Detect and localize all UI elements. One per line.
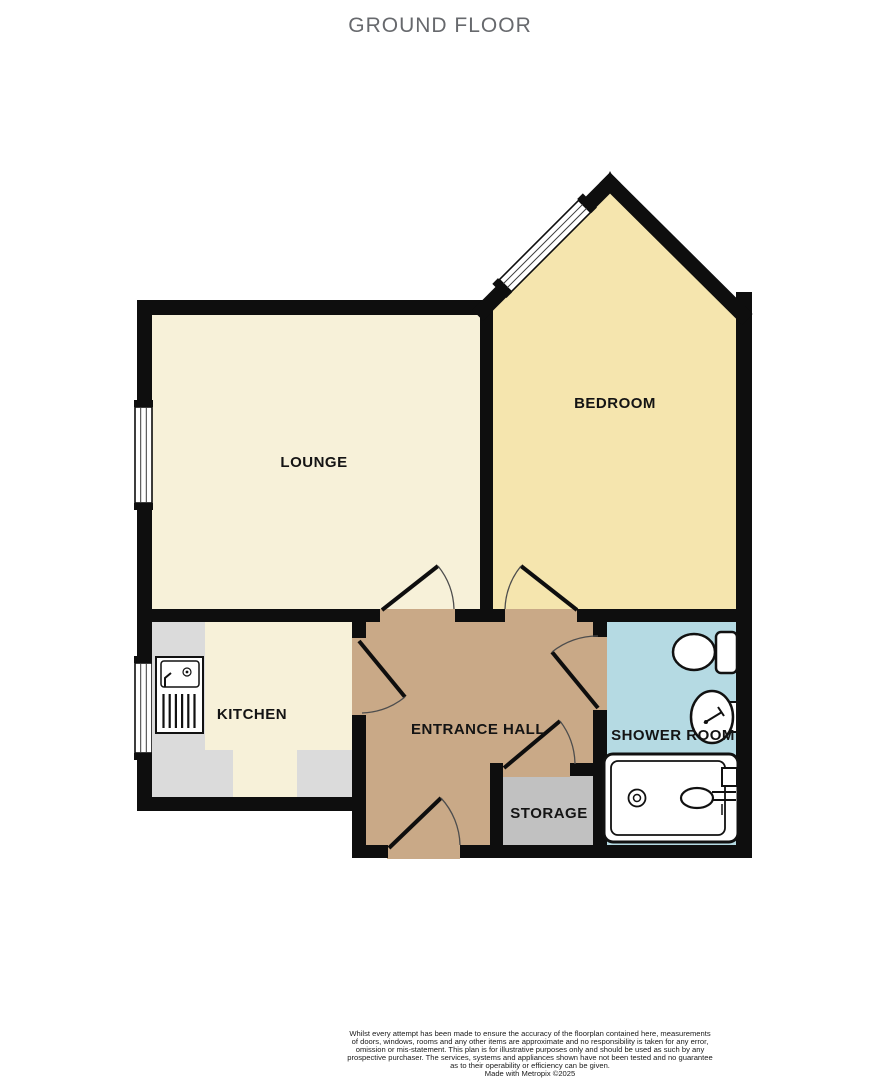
storage-doorway: [503, 763, 570, 777]
disclaimer: Whilst every attempt has been made to en…: [330, 1030, 730, 1077]
shower-drain-outer: [629, 790, 646, 807]
window-cap: [134, 753, 153, 760]
shower-doorway: [593, 637, 607, 710]
wall-bottom-right: [460, 845, 752, 858]
wall-storage-left: [490, 763, 503, 846]
shower-door-block: [722, 768, 737, 786]
shower-tray-outline: [604, 754, 738, 842]
made-with-metropix-line: Made with Metropix ©2025: [330, 1070, 730, 1078]
wall-lounge-bottom: [137, 609, 380, 622]
lounge-doorway: [380, 609, 455, 623]
entrance-hall-label: ENTRANCE HALL: [411, 721, 545, 738]
counter-bottom-left: [205, 750, 233, 797]
wall-storage-top: [570, 763, 607, 776]
floor-plan: LOUNGE BEDROOM KITCHEN ENTRANCE HALL SHO…: [0, 0, 889, 1080]
shower-tray-icon: [604, 754, 738, 842]
sink-bowl: [161, 661, 199, 687]
lounge-window: [134, 400, 153, 510]
toilet-cistern: [716, 632, 737, 673]
bedroom-label: BEDROOM: [574, 395, 656, 412]
wall-lounge-top: [137, 300, 493, 315]
wall-kitchen-bottom: [137, 797, 365, 811]
wall-lounge-bedroom-divider: [480, 302, 493, 611]
window-frame: [135, 407, 152, 503]
floorplan-page: GROUND FLOOR: [0, 0, 889, 1080]
window-cap: [134, 400, 153, 407]
sink-drain-center: [186, 671, 189, 674]
basin-drain: [704, 720, 708, 724]
kitchen-window: [134, 656, 153, 760]
window-cap: [134, 503, 153, 510]
front-doorway: [387, 845, 460, 859]
counter-bottom-right: [297, 750, 352, 797]
kitchen-label: KITCHEN: [217, 706, 287, 723]
shower-room-label: SHOWER ROOM: [611, 727, 735, 744]
wall-shower-left-upper: [593, 609, 607, 637]
window-cap: [134, 656, 153, 663]
kitchen-sink-icon: [156, 657, 203, 733]
toilet-icon: [673, 632, 737, 673]
shower-door-handle: [681, 788, 713, 808]
window-frame: [135, 663, 152, 753]
toilet-bowl: [673, 634, 715, 670]
lounge-label: LOUNGE: [280, 454, 347, 471]
bedroom-doorway: [505, 609, 577, 623]
wall-kitchen-divider-lower: [352, 715, 366, 858]
storage-label: STORAGE: [510, 805, 587, 822]
room-fills: [147, 188, 743, 851]
